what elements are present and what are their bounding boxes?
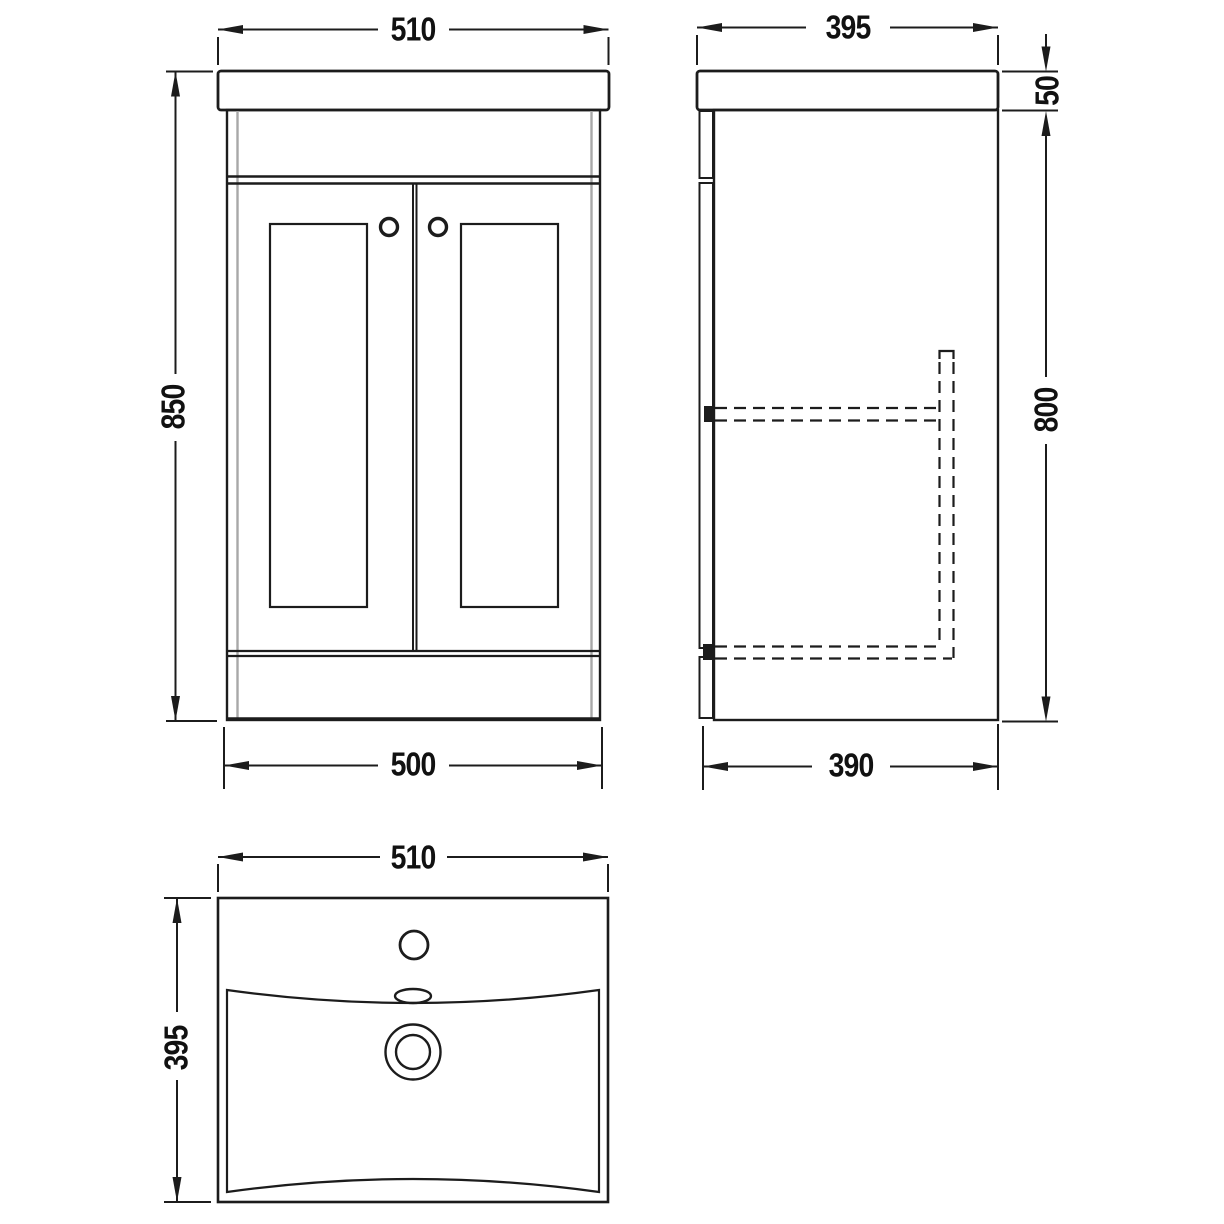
plan-395-arrow-bottom: [173, 1177, 182, 1202]
side-800-arrow-bottom: [1042, 697, 1051, 722]
front-left-door-panel: [270, 224, 367, 607]
dim-label-side-base-depth: 390: [829, 749, 874, 782]
front-850-arrow-top: [171, 72, 180, 97]
front-510-arrow-left: [218, 25, 243, 34]
plan-waste-outer: [386, 1025, 441, 1080]
front-500-arrow-right: [577, 761, 602, 770]
dim-label-side-cabinet-height: 800: [1030, 388, 1063, 433]
side-back-gap-cap: [940, 351, 954, 359]
side-395-arrow-left: [697, 23, 722, 32]
plan-510-arrow-right: [583, 853, 608, 862]
front-countertop: [218, 71, 609, 110]
side-390-arrow-left: [703, 762, 728, 771]
front-view: [218, 71, 609, 720]
plan-basin-bowl: [227, 990, 599, 1192]
front-850-arrow-bottom: [171, 696, 180, 721]
technical-drawing-canvas: 510 850 500 395 50 800 390 510 395: [0, 0, 1224, 1224]
front-500-arrow-left: [224, 761, 249, 770]
dim-label-front-overall-height: 850: [157, 385, 190, 430]
dim-label-front-base-width: 500: [391, 748, 436, 781]
side-50-arrow-down: [1042, 47, 1051, 72]
plan-395-arrow-top: [173, 898, 182, 923]
front-right-door-knob: [430, 219, 447, 236]
side-390-arrow-right: [973, 762, 998, 771]
side-cabinet-body: [714, 110, 998, 720]
side-bottom-front-edge: [703, 644, 714, 660]
plan-waste-inner: [396, 1035, 430, 1069]
plan-view-dimensions: [164, 853, 608, 1203]
front-left-door-knob: [381, 219, 398, 236]
plan-510-arrow-left: [218, 853, 243, 862]
side-countertop: [697, 71, 998, 110]
plan-view: [218, 898, 608, 1202]
plan-tap-hole: [400, 931, 428, 959]
plan-basin-outer: [218, 898, 608, 1202]
dim-label-front-top-width: 510: [391, 13, 436, 46]
side-395-arrow-right: [973, 23, 998, 32]
side-800-arrow-top: [1042, 111, 1051, 136]
side-door-strip-top: [700, 111, 714, 178]
side-view: [697, 71, 998, 720]
side-door-strip-bottom: [700, 657, 714, 718]
side-view-dimensions: [697, 23, 1058, 790]
dim-label-plan-basin-depth: 395: [160, 1026, 193, 1071]
dim-label-side-top-depth: 395: [826, 11, 871, 44]
front-right-door-panel: [461, 224, 558, 607]
side-shelf-front-edge: [704, 406, 715, 422]
dim-label-side-worktop-thickness: 50: [1031, 76, 1064, 106]
plan-overflow-slot: [395, 989, 431, 1003]
front-510-arrow-right: [584, 25, 609, 34]
dim-label-plan-basin-width: 510: [391, 841, 436, 874]
front-view-dimensions: [166, 25, 609, 789]
